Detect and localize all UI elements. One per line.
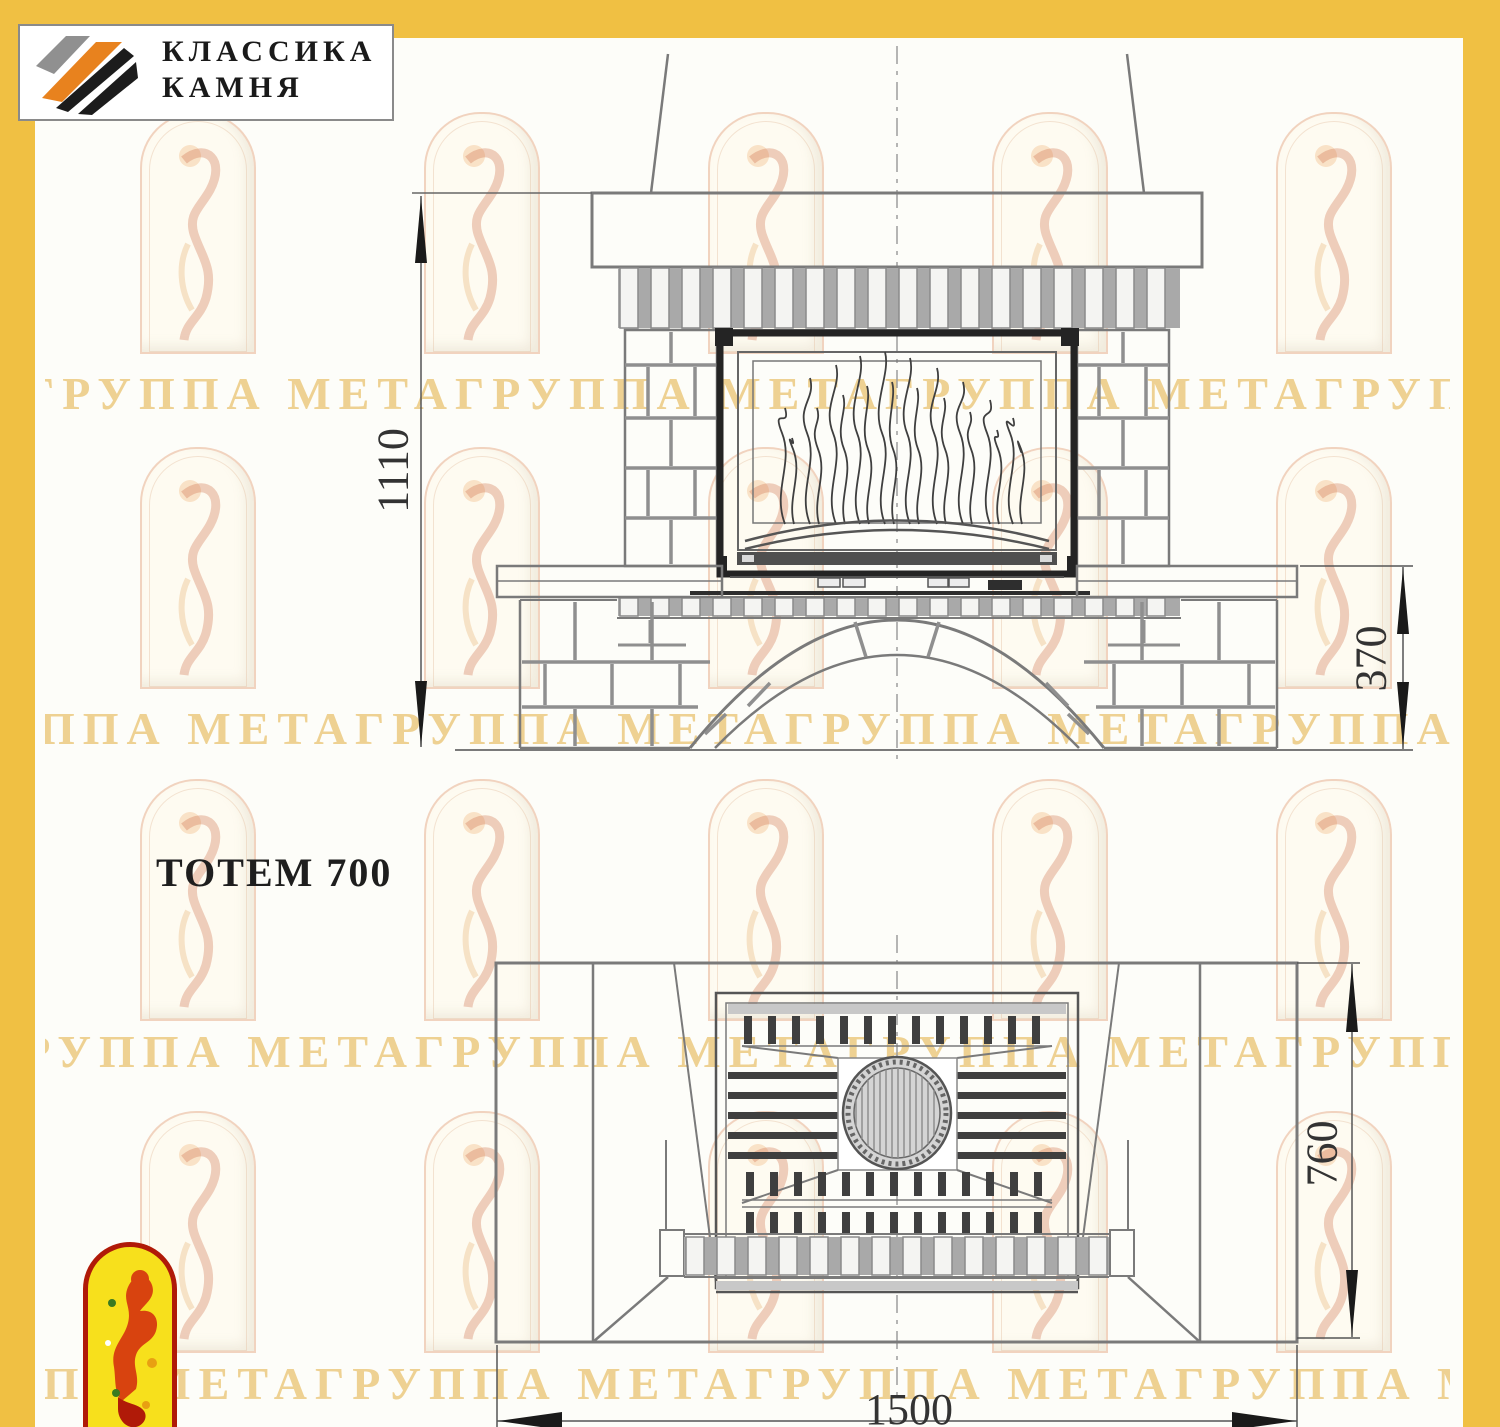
watermark-bird-icon [142,449,254,687]
watermark-bird-icon [994,114,1106,352]
dimension-1500-label: 1500 [809,1384,1009,1427]
page: ГРУППА МЕТАГРУППА МЕТАГРУППА МЕТАГРУППА … [0,0,1500,1427]
watermark-arch [992,779,1108,1021]
dimension-1110-label: 1110 [368,421,419,521]
logo-stripes-icon [30,30,150,115]
watermark-bird-icon [994,781,1106,1019]
watermark-bird-icon [426,449,538,687]
watermark-bird-icon [426,114,538,352]
logo-line1: КЛАССИКА [162,34,376,70]
watermark-bird-icon [994,449,1106,687]
watermark-bird-icon [710,781,822,1019]
watermark-arch [140,779,256,1021]
watermark-layer: ГРУППА МЕТАГРУППА МЕТАГРУППА МЕТАГРУППА … [0,0,1500,1427]
company-logo: КЛАССИКА КАМНЯ [18,24,394,121]
watermark-text-row: ГРУППА МЕТАГРУППА МЕТАГРУППА МЕТАГРУППА … [45,367,1450,419]
watermark-arch [424,112,540,354]
watermark-bird-icon [710,114,822,352]
logo-line2: КАМНЯ [162,70,376,106]
watermark-bird-icon [426,781,538,1019]
watermark-bird-icon [142,114,254,352]
watermark-text-row: ГРУППА МЕТАГРУППА МЕТАГРУППА МЕТАГРУППА … [45,702,1450,754]
watermark-arch [1276,112,1392,354]
watermark-arch [708,779,824,1021]
watermark-arch [140,112,256,354]
dimension-370-label: 370 [1346,617,1397,701]
watermark-bird-icon [710,449,822,687]
watermark-arch [1276,779,1392,1021]
watermark-arch [424,779,540,1021]
watermark-bird-icon [1278,781,1390,1019]
watermark-arch [708,447,824,689]
dimension-760-label: 760 [1297,1109,1348,1199]
watermark-bird-icon [1278,114,1390,352]
meta-group-badge [83,1242,177,1427]
watermark-arch [708,1111,824,1353]
watermark-bird-icon [710,1113,822,1351]
model-title: ТОТЕМ 700 [156,849,392,896]
watermark-arch [424,1111,540,1353]
watermark-text-row: ГРУППА МЕТАГРУППА МЕТАГРУППА МЕТАГРУППА … [45,1025,1450,1077]
watermark-arch [992,112,1108,354]
watermark-arch [424,447,540,689]
watermark-arch [708,112,824,354]
watermark-bird-icon [142,781,254,1019]
watermark-arch [992,1111,1108,1353]
watermark-bird-icon [994,1113,1106,1351]
watermark-bird-icon [426,1113,538,1351]
watermark-arch [992,447,1108,689]
logo-text: КЛАССИКА КАМНЯ [162,34,376,106]
watermark-text-row: ГРУППА МЕТАГРУППА МЕТАГРУППА МЕТАГРУППА … [45,1357,1450,1409]
watermark-arch [140,447,256,689]
badge-figure-icon [88,1247,172,1427]
